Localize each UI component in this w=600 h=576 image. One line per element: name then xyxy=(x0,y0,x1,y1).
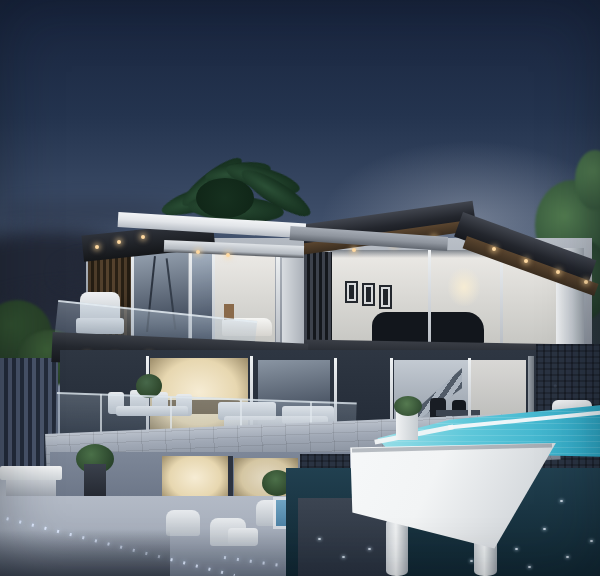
water-sparkle xyxy=(543,528,546,530)
water-sparkle xyxy=(528,566,531,568)
link-wall xyxy=(282,258,304,346)
side-table xyxy=(228,528,258,546)
soffit-light xyxy=(492,247,496,251)
soffit-light xyxy=(584,280,588,284)
water-sparkle xyxy=(515,548,518,550)
water-sparkle xyxy=(368,548,371,550)
artwork-frame xyxy=(379,285,392,309)
white-bench xyxy=(0,466,62,480)
soffit-light xyxy=(95,245,99,249)
interior-lamp-glow xyxy=(448,268,480,306)
water-sparkle xyxy=(590,540,593,542)
water-sparkle xyxy=(318,538,321,540)
soffit-light xyxy=(196,250,200,254)
artwork-frame xyxy=(345,281,358,303)
pool-planter xyxy=(396,412,418,440)
artwork-frame xyxy=(362,283,375,306)
planter-pot xyxy=(84,464,106,500)
villa-dusk-photo xyxy=(0,0,600,576)
soffit-light xyxy=(226,253,230,257)
pool-planter-plant xyxy=(394,396,422,416)
soffit-light xyxy=(524,259,528,263)
corner-shadow xyxy=(0,530,170,576)
soffit-light xyxy=(352,248,356,252)
soffit-light xyxy=(556,270,560,274)
water-sparkle xyxy=(560,500,563,502)
water-sparkle xyxy=(470,560,473,562)
water-sparkle xyxy=(566,556,569,558)
pool-pillar xyxy=(386,518,408,576)
soffit-light xyxy=(117,240,121,244)
window-mullion xyxy=(500,250,503,344)
lounge-chair xyxy=(166,510,200,536)
soffit-light xyxy=(141,235,145,239)
window-mullion xyxy=(428,250,431,344)
water-sparkle xyxy=(342,556,345,558)
window-mullion xyxy=(276,252,280,342)
